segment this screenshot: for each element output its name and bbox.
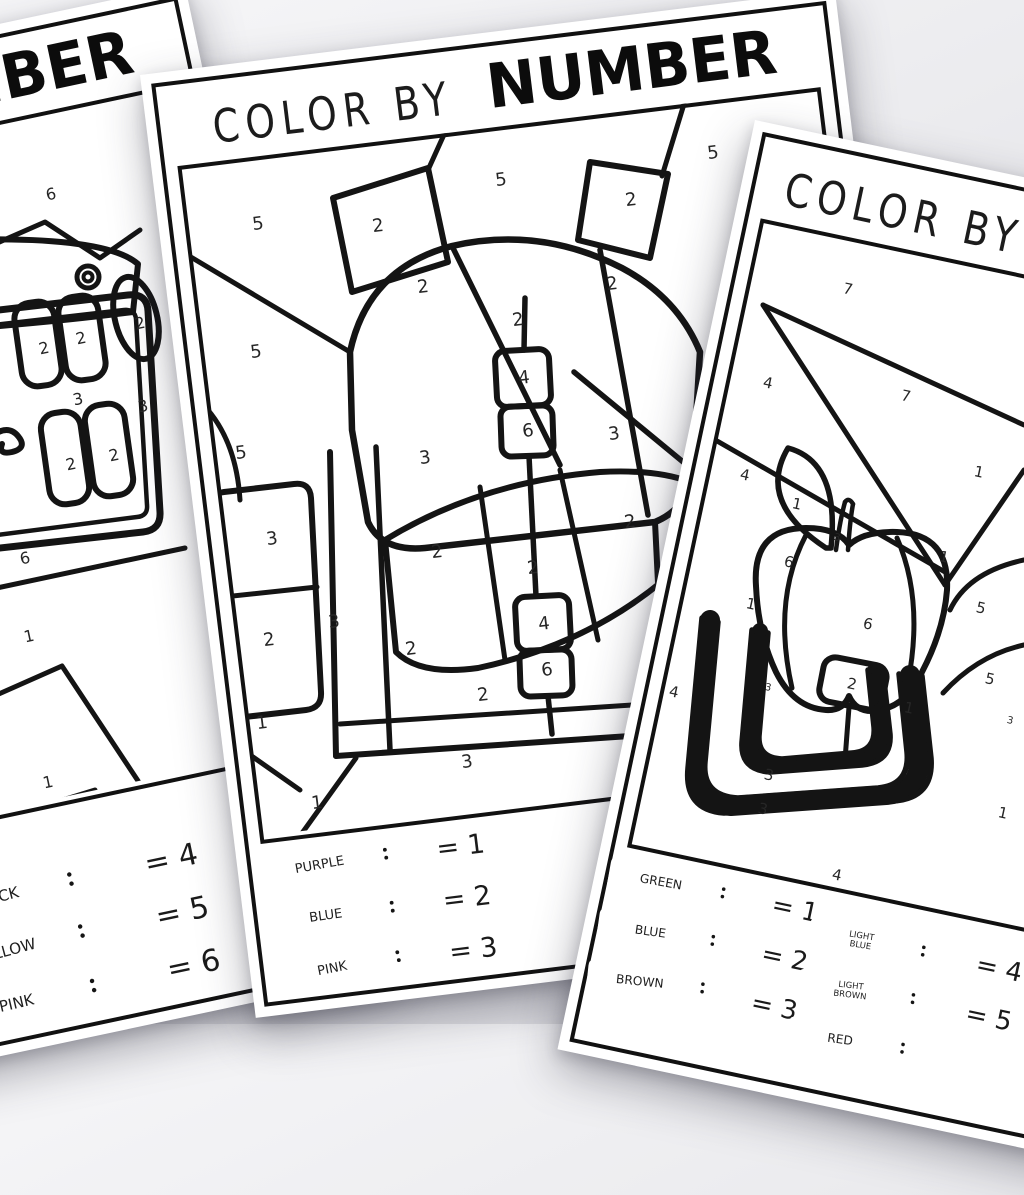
crayon-label: LIGHTBROWN: [833, 978, 868, 1001]
worksheets-collage: COLOR BYNUMBERBLACK= 4YELLOW= 5PINK= 662…: [0, 0, 1024, 1024]
legend-value: = 1: [435, 828, 487, 865]
legend-value: = 2: [441, 880, 493, 917]
legend-value: = 3: [447, 932, 499, 969]
